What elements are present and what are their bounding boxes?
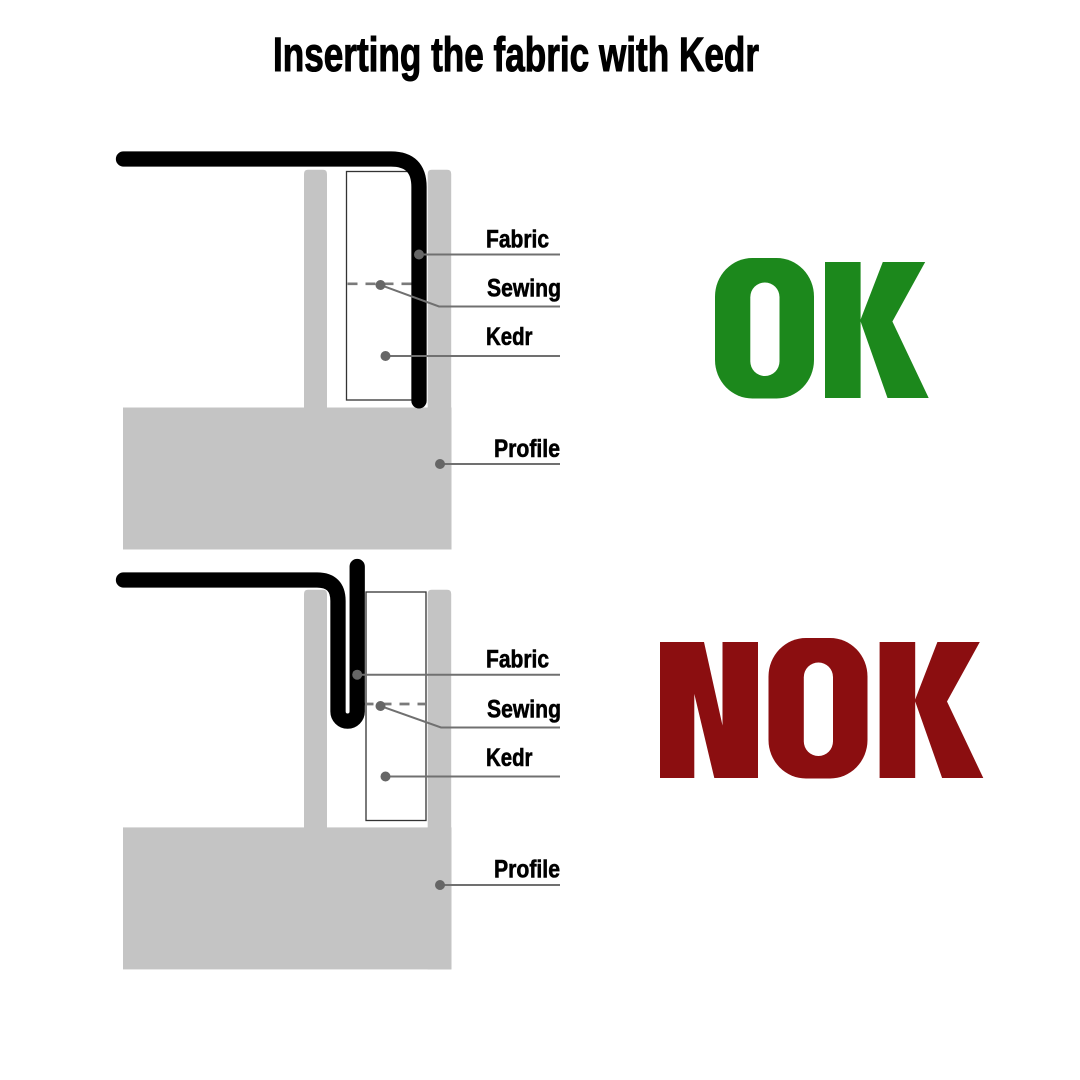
svg-text:Fabric: Fabric — [486, 646, 549, 674]
svg-text:Sewing: Sewing — [487, 696, 561, 724]
svg-text:Inserting the fabric with Kedr: Inserting the fabric with Kedr — [273, 29, 759, 82]
svg-text:Sewing: Sewing — [487, 275, 561, 303]
svg-text:Kedr: Kedr — [486, 323, 533, 351]
svg-text:Profile: Profile — [494, 856, 560, 884]
svg-text:Kedr: Kedr — [486, 744, 533, 772]
svg-text:Fabric: Fabric — [486, 226, 549, 254]
svg-text:Profile: Profile — [494, 435, 560, 463]
